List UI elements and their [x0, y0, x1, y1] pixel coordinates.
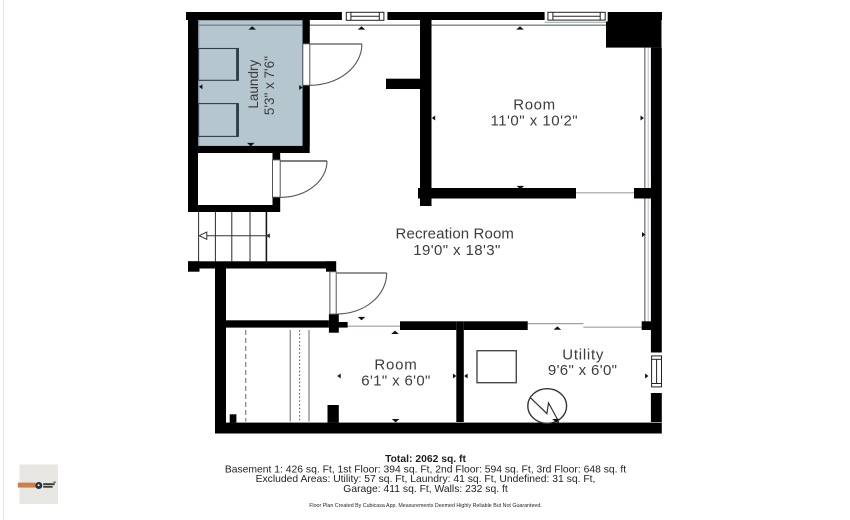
svg-text:Floor Plan Created By Cubicasa: Floor Plan Created By Cubicasa App. Meas… [309, 503, 542, 509]
svg-text:11'0" x 10'2": 11'0" x 10'2" [490, 113, 578, 130]
svg-text:19'0" x 18'3": 19'0" x 18'3" [413, 242, 500, 259]
svg-text:9'6" x 6'0": 9'6" x 6'0" [548, 362, 617, 379]
svg-text:Recreation Room: Recreation Room [396, 225, 515, 242]
svg-text:Utility: Utility [562, 347, 604, 364]
svg-text:Laundry: Laundry [246, 60, 261, 109]
svg-text:6'1" x 6'0": 6'1" x 6'0" [361, 373, 430, 390]
svg-text:Total: 2062 sq. ft: Total: 2062 sq. ft [385, 454, 466, 465]
svg-text:Room: Room [374, 357, 417, 374]
svg-text:Garage: 411 sq. Ft, Walls: 232: Garage: 411 sq. Ft, Walls: 232 sq. ft [343, 484, 508, 495]
svg-text:5'3" x 7'6": 5'3" x 7'6" [262, 56, 277, 115]
svg-text:Room: Room [513, 96, 555, 113]
